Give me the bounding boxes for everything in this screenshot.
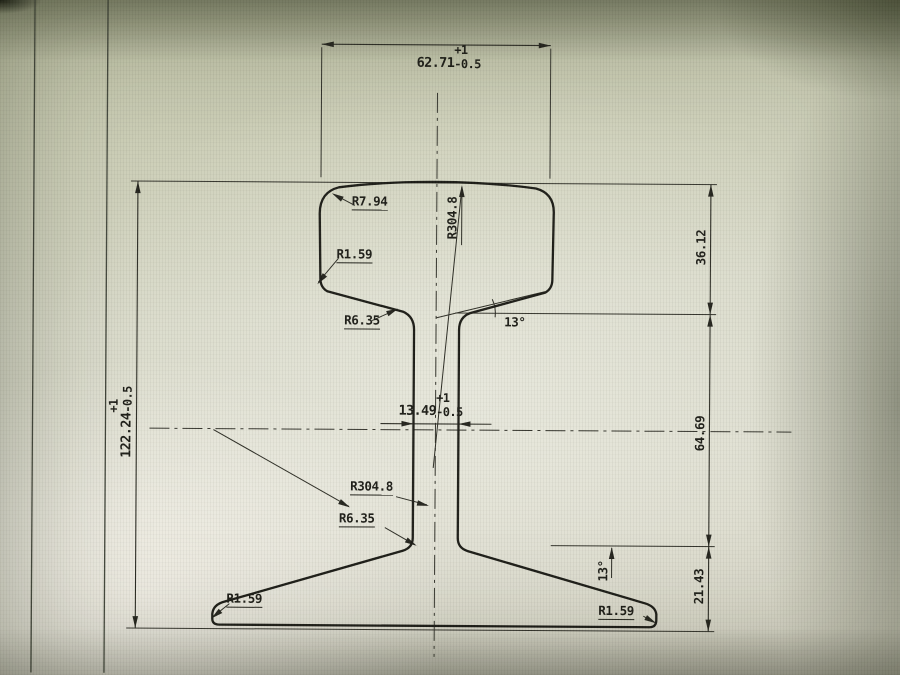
total-height-dimension: 122.24+1-0.5 [106,386,134,458]
base-left-radius-label: R1.59 [226,593,262,608]
head-angle-label: 13° [504,316,525,329]
head-width-tol-plus: +1 [454,43,467,57]
crown-radius-label: R304.8 [446,197,459,240]
base-right-radius-label: R1.59 [598,605,634,620]
web-thickness-value: 13.49 [398,403,436,419]
arrowheads [132,40,714,631]
total-height-dim-line [135,181,138,628]
vertical-centerline [434,93,437,657]
web-thickness-tol-minus: -0.5 [436,405,463,419]
right-chain-dim-line [708,185,711,632]
head-corner-radius-label: R7.94 [352,195,388,210]
head-width-tol-minus: -0.5 [454,57,481,71]
total-height-tol-plus: +1 [107,399,121,412]
total-height-tol-minus: -0.5 [121,386,135,413]
base-height-dimension: 21.43 [693,569,706,605]
base-angle-label: 13° [597,560,610,581]
extension-lines [126,46,718,632]
web-thickness-tol-plus: +1 [436,391,449,405]
head-width-value: 62.71 [417,55,455,71]
head-depth-dimension: 36.12 [695,230,708,266]
head-side-radius-label: R1.59 [336,248,372,263]
head-web-fillet-label: R6.35 [344,314,380,329]
web-base-fillet-label: R6.35 [339,512,375,527]
cad-drawing-sheet: 62.71+1-0.5 122.24+1-0.5 13.49+1-0.5 36.… [0,0,900,675]
web-radius-label: R304.8 [350,480,393,495]
photographed-screen: 62.71+1-0.5 122.24+1-0.5 13.49+1-0.5 36.… [0,0,900,675]
head-width-dimension: 62.71+1-0.5 [417,43,481,71]
frame-lines [31,0,108,673]
rail-section-drawing [0,0,900,675]
web-thickness-dimension: 13.49+1-0.5 [398,391,462,419]
total-height-value: 122.24 [118,413,134,458]
web-zone-height-dimension: 64.69 [694,416,707,452]
dimension-lines [135,43,712,631]
